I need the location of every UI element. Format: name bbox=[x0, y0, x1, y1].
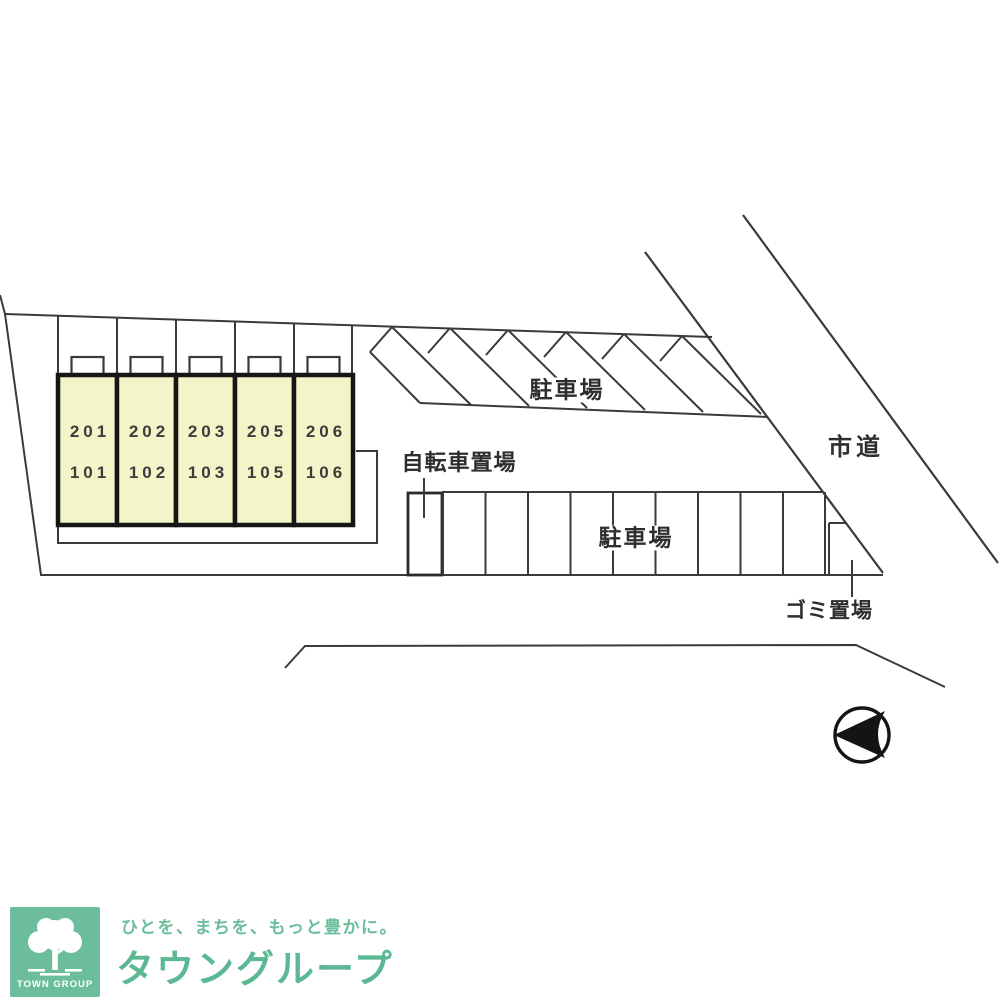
site-plan-drawing bbox=[0, 0, 1000, 1000]
town-group-logo-text: TOWN GROUP bbox=[10, 979, 100, 990]
brand-tagline: ひとを、まちを、もっと豊かに。 bbox=[121, 913, 398, 938]
city-road-label: 市道 bbox=[826, 435, 886, 461]
road-edge-right bbox=[743, 215, 998, 563]
unit-label-206: 206 bbox=[302, 422, 346, 442]
brand-name: タウングループ bbox=[116, 938, 394, 993]
unit-label-106: 106 bbox=[302, 463, 346, 483]
site-boundary-top bbox=[5, 314, 712, 337]
garbage-area-label: ゴミ置場 bbox=[783, 600, 875, 623]
upper-parking-label: 駐車場 bbox=[528, 378, 607, 403]
unit-label-102: 102 bbox=[125, 463, 169, 483]
angled-parking-stalls bbox=[370, 327, 768, 417]
site-boundary-bottom bbox=[285, 645, 945, 687]
lower-parking-label: 駐車場 bbox=[597, 526, 676, 551]
building-outline bbox=[58, 375, 353, 525]
unit-label-101: 101 bbox=[66, 463, 110, 483]
unit-label-203: 203 bbox=[184, 422, 228, 442]
arrow-sign-icon bbox=[834, 708, 889, 762]
unit-label-105: 105 bbox=[243, 463, 287, 483]
unit-label-201: 201 bbox=[66, 422, 110, 442]
unit-label-103: 103 bbox=[184, 463, 228, 483]
bicycle-parking-label: 自転車置場 bbox=[399, 451, 518, 475]
site-plan-page: 駐車場 市道 自転車置場 駐車場 ゴミ置場 201 202 203 205 20… bbox=[0, 0, 1000, 1000]
garbage-area-box bbox=[829, 523, 847, 575]
unit-label-202: 202 bbox=[125, 422, 169, 442]
town-group-logo: TOWN GROUP bbox=[10, 907, 100, 997]
unit-label-205: 205 bbox=[243, 422, 287, 442]
